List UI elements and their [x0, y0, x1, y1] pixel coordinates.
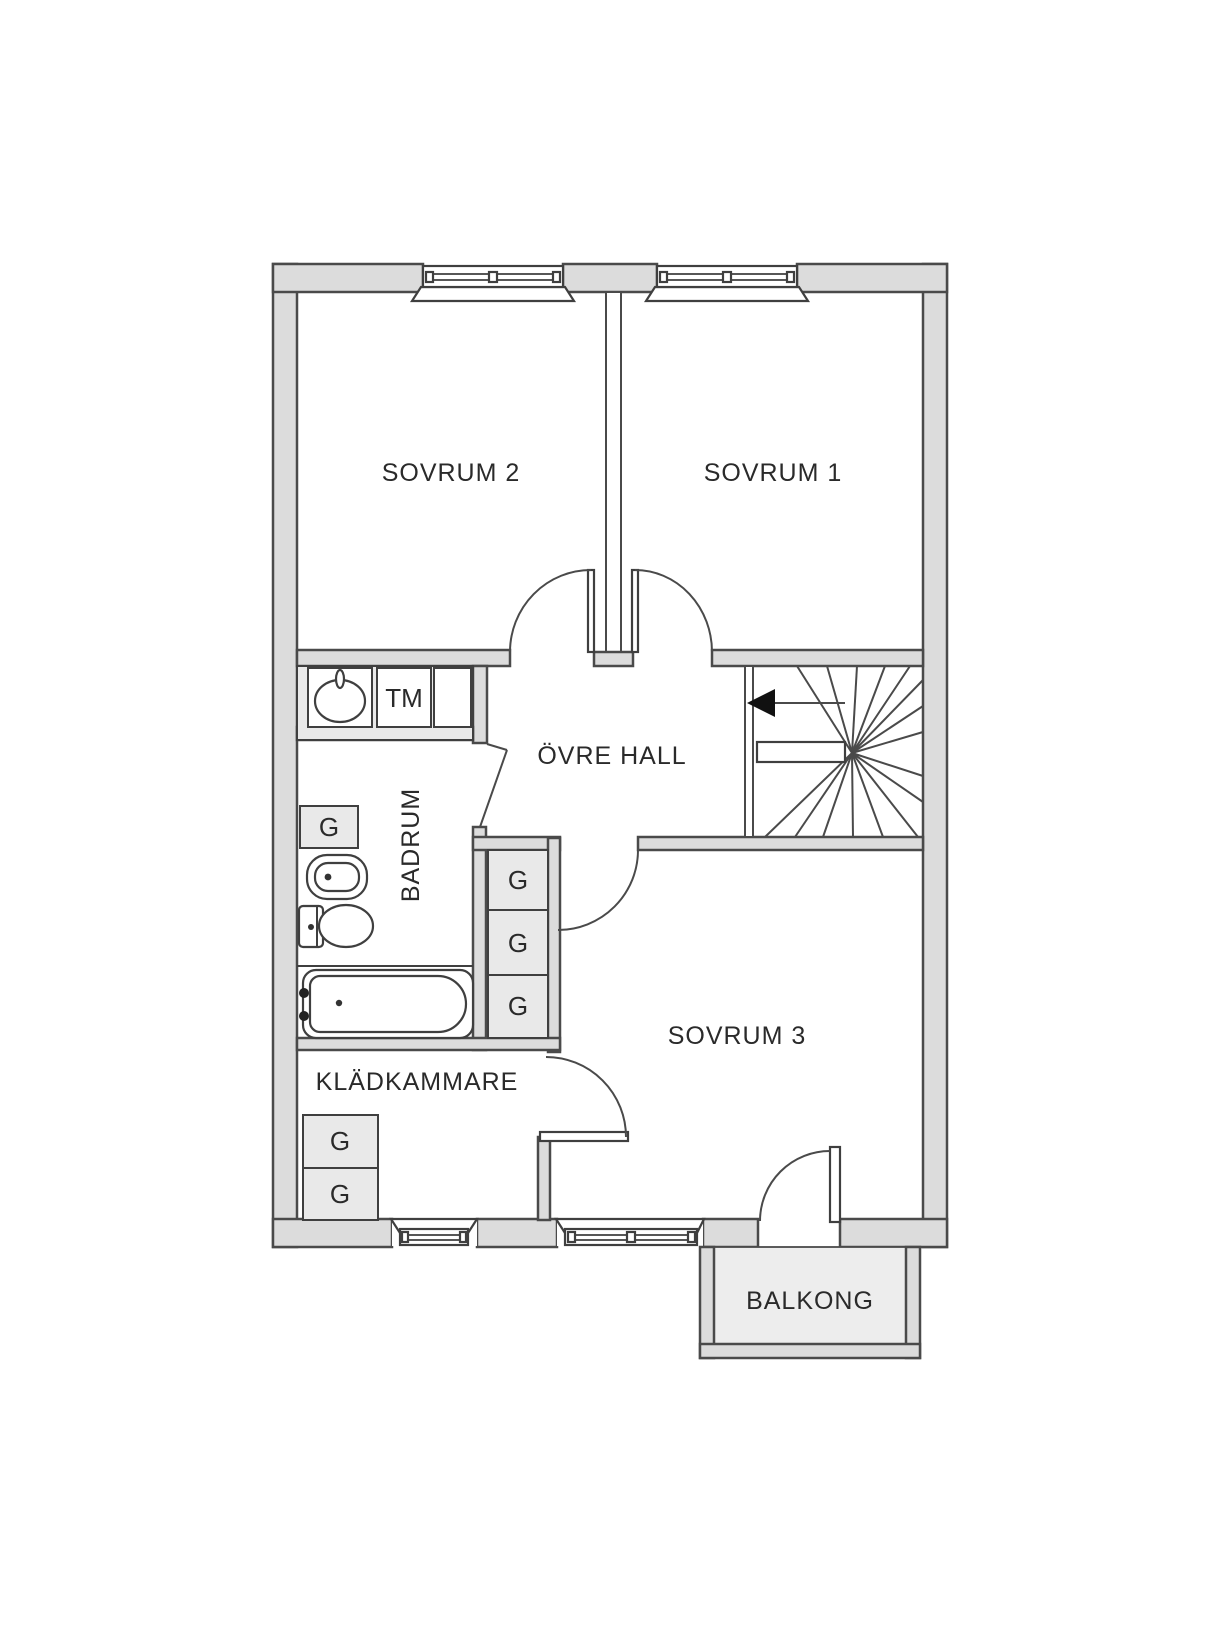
wall-segment	[297, 1038, 560, 1050]
laundry-nook: TM	[297, 666, 473, 740]
bathtub-icon	[299, 970, 473, 1038]
door-balcony	[760, 1147, 840, 1222]
room-label-sovrum1: SOVRUM 1	[704, 459, 843, 487]
stair-rail	[757, 742, 845, 762]
wall-segment	[840, 1219, 947, 1247]
door-arc	[635, 570, 712, 652]
wall-segment	[273, 1219, 392, 1247]
floor-plan-page: TM G G G G	[0, 0, 1230, 1626]
window-icon	[646, 265, 808, 301]
door-sovrum1	[632, 570, 712, 652]
room-label-sovrum2: SOVRUM 2	[382, 459, 521, 487]
kladkammare-wardrobes: G G	[303, 1115, 378, 1220]
wardrobe-label: G	[508, 928, 528, 958]
balcony-wall	[700, 1344, 920, 1358]
door-arc	[558, 850, 638, 930]
door-badrum	[480, 744, 507, 827]
room-label-badrum: BADRUM	[397, 788, 425, 902]
wardrobe-column: G G G	[488, 850, 548, 1038]
faucet-icon	[299, 988, 309, 998]
wall-segment	[797, 264, 947, 292]
door-kladkammare	[540, 1057, 628, 1141]
floor-plan: TM G G G G	[0, 0, 1230, 1626]
wardrobe-label: G	[319, 812, 339, 842]
staircase	[747, 666, 923, 837]
door-arc	[510, 570, 591, 652]
wall-segment	[594, 652, 633, 666]
door-arc	[546, 1057, 626, 1137]
room-label-balkong: BALKONG	[746, 1287, 874, 1315]
wardrobe-label: G	[330, 1179, 350, 1209]
window-icon	[556, 1219, 704, 1246]
wall-segment	[548, 838, 560, 1052]
toilet-icon	[299, 905, 373, 947]
room-label-ovre-hall: ÖVRE HALL	[537, 742, 686, 770]
wall-segment	[273, 264, 297, 1247]
wardrobe-label: G	[508, 991, 528, 1021]
wall-segment	[473, 827, 486, 1050]
wardrobe-label: G	[508, 865, 528, 895]
room-label-kladkammare: KLÄDKAMMARE	[316, 1068, 519, 1096]
wall-segment	[703, 1219, 758, 1247]
wall-segment	[712, 650, 923, 666]
wall-segment	[273, 264, 423, 292]
wall-segment	[638, 837, 923, 850]
wall-segment	[563, 264, 657, 292]
wall-segment	[923, 264, 947, 1247]
door-sovrum3	[558, 850, 638, 930]
bathroom-fixtures: G	[297, 806, 473, 1038]
window-icon	[412, 265, 574, 301]
door-sovrum2	[510, 570, 594, 652]
wall-stair-screen	[745, 666, 753, 837]
wall-segment	[538, 1137, 550, 1220]
wall-segment	[477, 1219, 557, 1247]
bidet-icon	[307, 855, 367, 899]
wall-segment	[297, 650, 510, 666]
balcony: BALKONG	[700, 1247, 920, 1358]
cabinet	[434, 668, 471, 727]
room-label-sovrum3: SOVRUM 3	[668, 1022, 807, 1050]
wardrobe-label: G	[330, 1126, 350, 1156]
balcony-wall	[700, 1247, 714, 1358]
wall-bedroom-divider	[606, 292, 621, 654]
washing-machine-label: TM	[385, 683, 423, 713]
wall-segment	[473, 666, 487, 743]
sink-icon	[308, 668, 372, 727]
door-arc	[760, 1151, 830, 1221]
faucet-icon	[299, 1011, 309, 1021]
drain	[336, 1000, 342, 1006]
balcony-wall	[906, 1247, 920, 1358]
window-icon	[391, 1219, 477, 1246]
